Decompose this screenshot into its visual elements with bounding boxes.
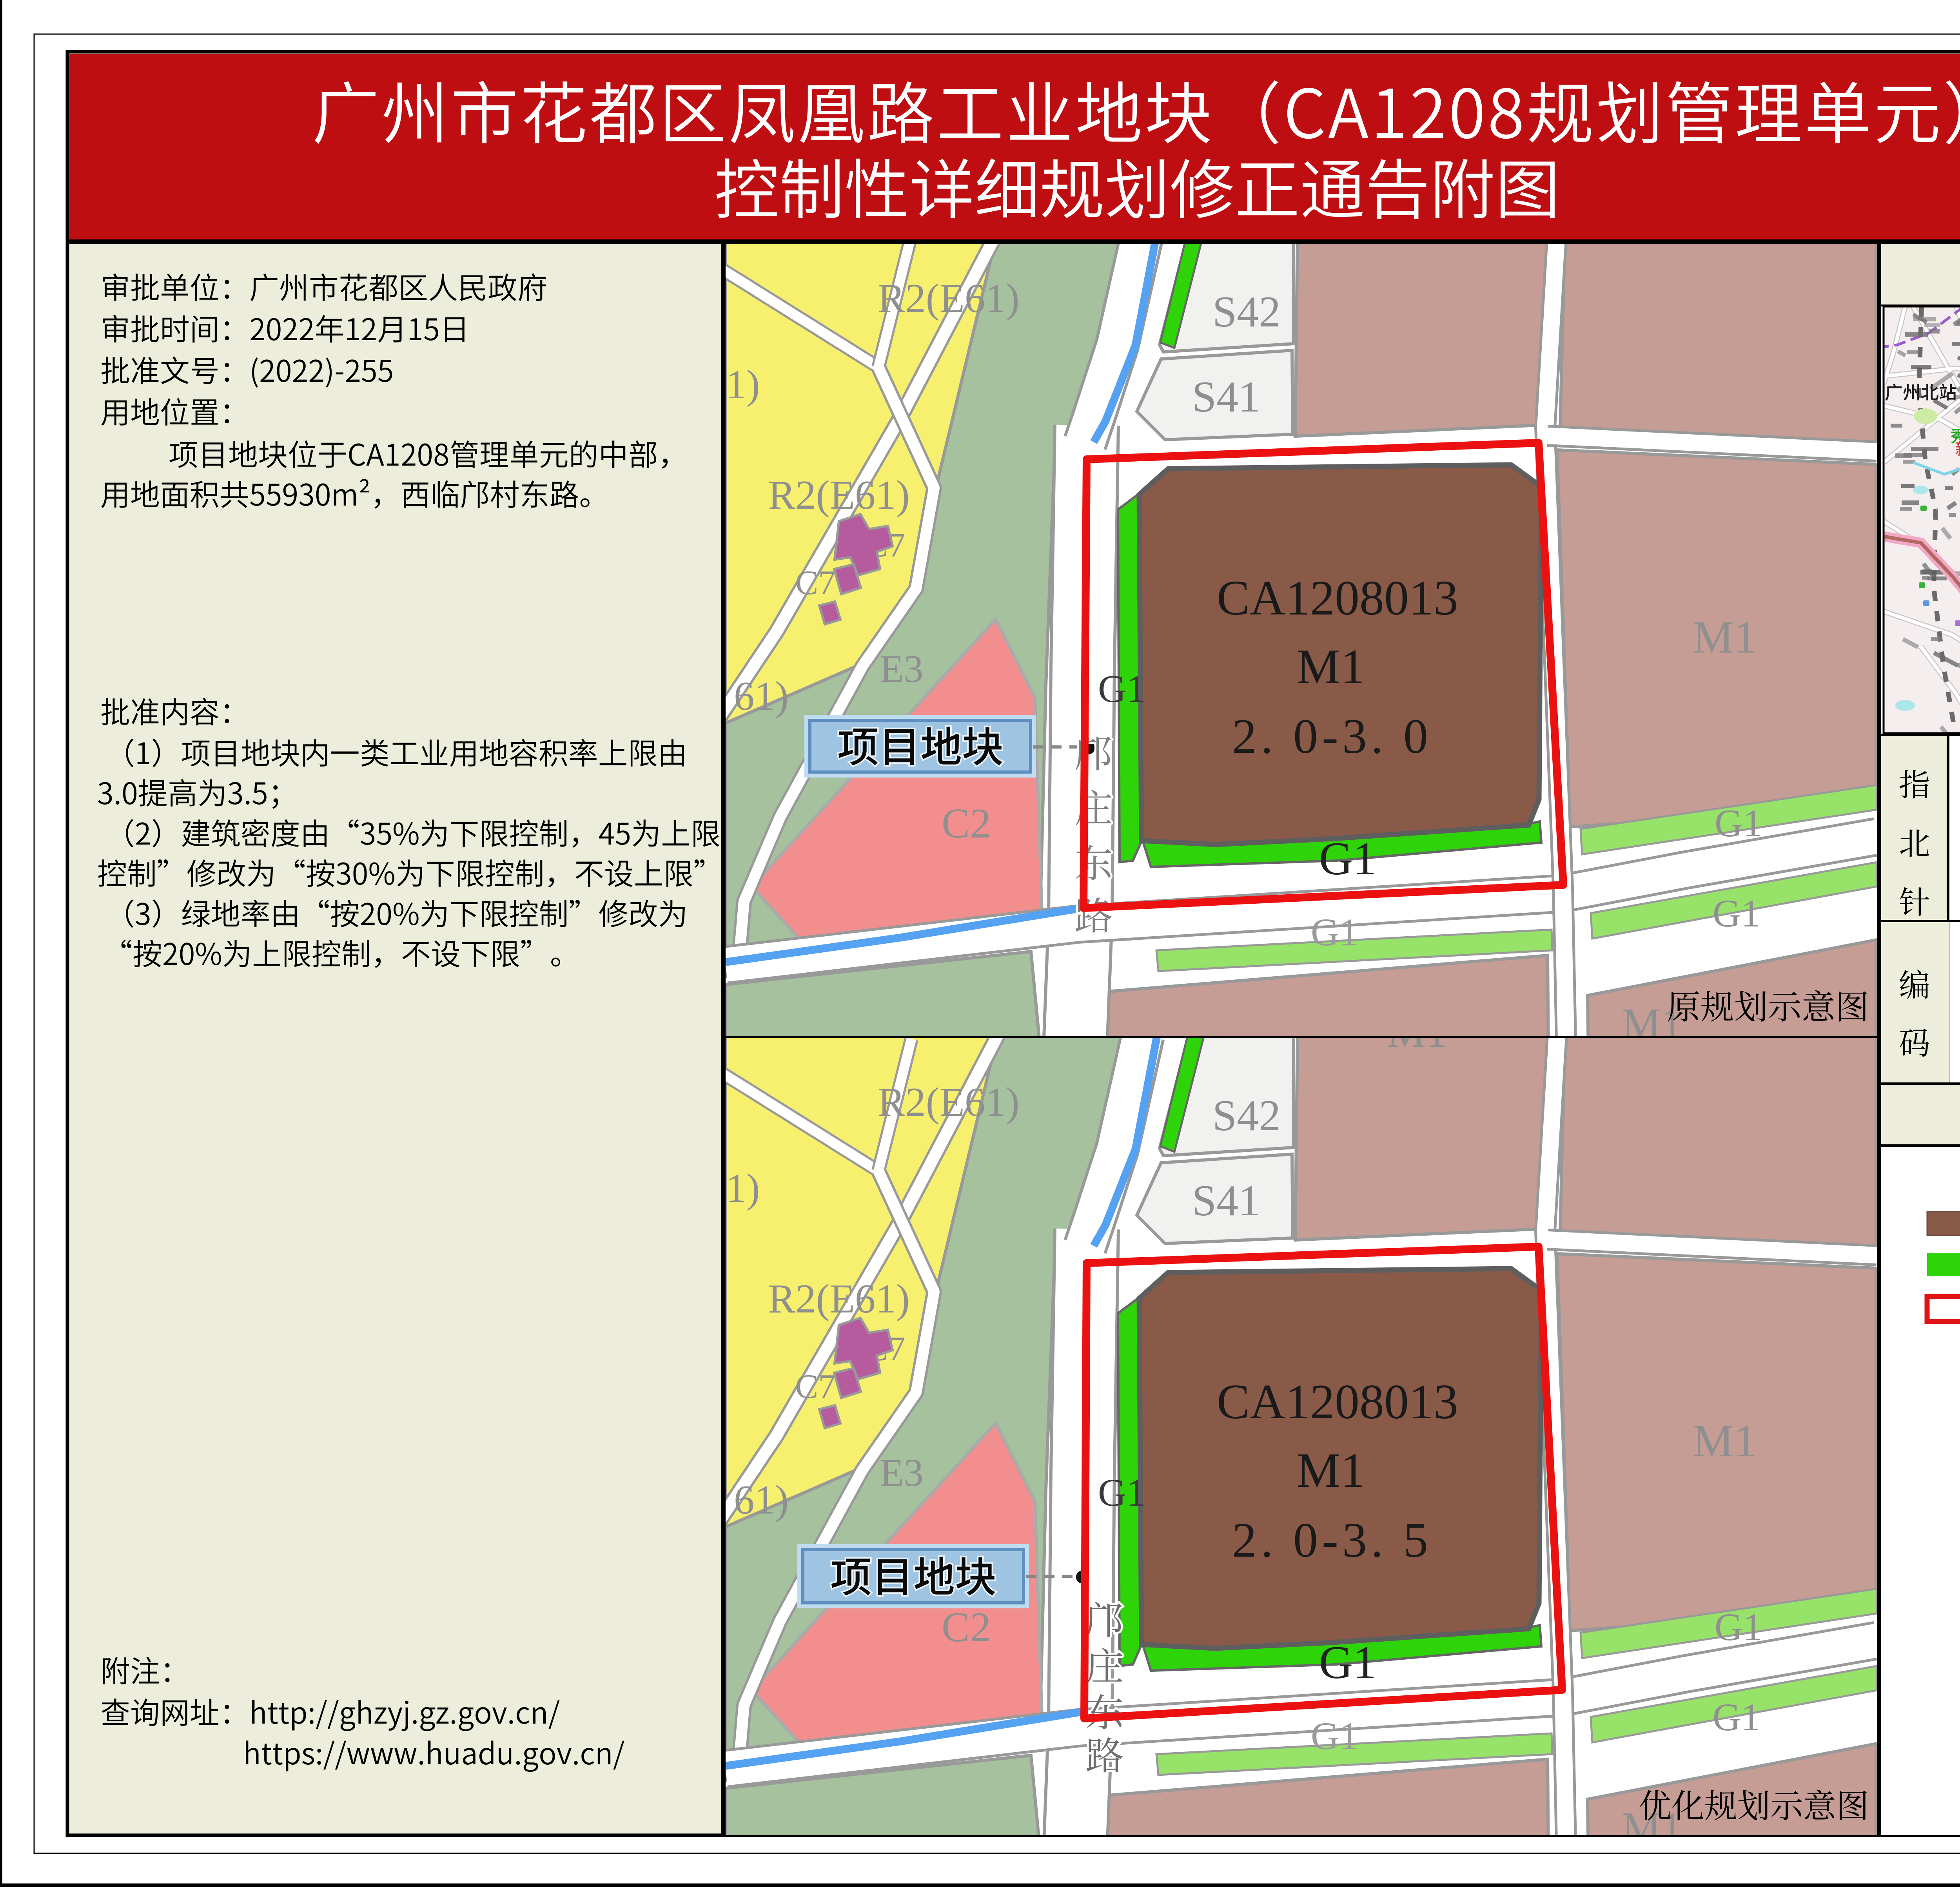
svg-text:C2: C2: [942, 800, 991, 847]
svg-text:G1: G1: [1319, 832, 1377, 885]
svg-text:G1: G1: [1715, 1605, 1762, 1649]
svg-text:G1: G1: [1319, 1636, 1377, 1688]
svg-text:R2(E61): R2(E61): [878, 1079, 1020, 1125]
svg-text:C7: C7: [795, 1368, 836, 1406]
svg-text:1): 1): [726, 1165, 760, 1211]
svg-text:G1: G1: [1098, 667, 1146, 711]
svg-text:G1: G1: [1098, 1471, 1146, 1514]
svg-text:M1: M1: [1693, 1415, 1757, 1466]
svg-text:C2: C2: [942, 1604, 991, 1651]
svg-text:G1: G1: [1311, 910, 1359, 954]
svg-text:E3: E3: [880, 1451, 923, 1494]
svg-text:61): 61): [734, 1477, 789, 1523]
svg-text:E3: E3: [880, 647, 923, 691]
svg-text:S41: S41: [1192, 373, 1260, 421]
svg-text:CA1208013: CA1208013: [1217, 1375, 1458, 1429]
svg-text:1): 1): [726, 361, 760, 407]
svg-text:M1: M1: [1296, 1443, 1365, 1498]
svg-text:S41: S41: [1192, 1176, 1260, 1225]
svg-text:2. 0-3. 5: 2. 0-3. 5: [1232, 1513, 1432, 1568]
svg-text:G1: G1: [1713, 1695, 1760, 1739]
svg-text:61): 61): [734, 673, 789, 719]
svg-text:M1: M1: [1296, 640, 1365, 694]
svg-text:S42: S42: [1212, 1091, 1281, 1140]
svg-text:G1: G1: [1713, 892, 1760, 935]
svg-text:M1: M1: [1693, 611, 1757, 663]
svg-text:C7: C7: [795, 564, 836, 602]
svg-text:G1: G1: [1311, 1714, 1359, 1758]
svg-text:S42: S42: [1212, 288, 1281, 336]
svg-text:R2(E61): R2(E61): [878, 275, 1020, 321]
svg-text:G1: G1: [1715, 801, 1762, 845]
svg-text:2. 0-3. 0: 2. 0-3. 0: [1232, 709, 1432, 764]
svg-text:CA1208013: CA1208013: [1217, 571, 1458, 625]
svg-text:R2(E61): R2(E61): [768, 472, 910, 518]
svg-text:R2(E61): R2(E61): [768, 1276, 910, 1321]
